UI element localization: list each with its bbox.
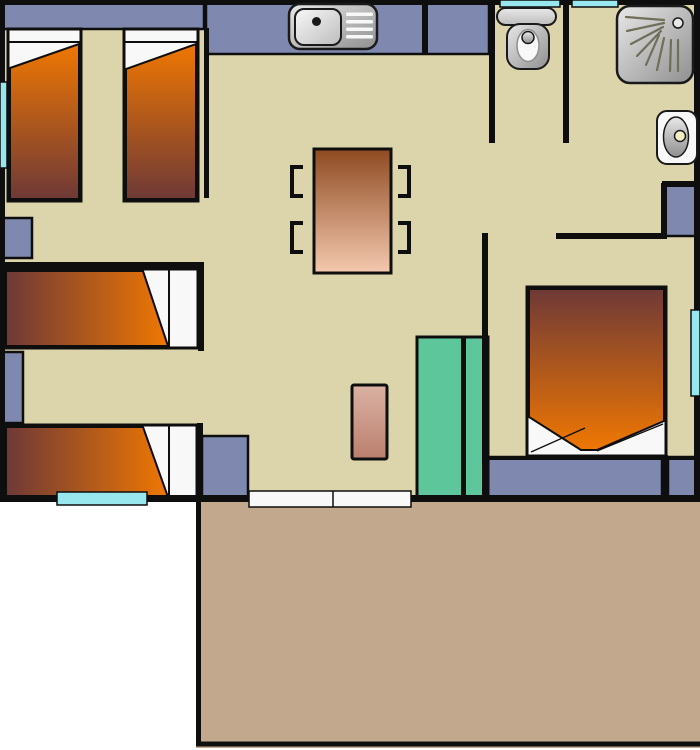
- blanket: [529, 289, 664, 450]
- wall: [563, 0, 569, 143]
- exterior-wall: [0, 0, 5, 502]
- wall: [198, 262, 204, 351]
- wall: [487, 456, 700, 460]
- storage-closet: [664, 184, 697, 236]
- bed-single-1: [8, 29, 81, 201]
- sink-drain-icon: [312, 17, 321, 26]
- toilet-cistern: [497, 8, 556, 25]
- sliding-door: [249, 491, 411, 507]
- sink-bowl: [295, 9, 341, 45]
- terrace-deck: [196, 497, 700, 748]
- wardrobe-blue: [202, 436, 248, 498]
- wardrobe-green-divider: [461, 337, 466, 500]
- wall: [661, 183, 667, 239]
- bed-double: [527, 287, 666, 456]
- wall-shelf: [2, 218, 32, 258]
- rug: [352, 385, 387, 459]
- blanket: [10, 44, 79, 199]
- wall: [662, 455, 668, 498]
- bed-bench: [485, 457, 662, 498]
- sliding-door-panel: [249, 491, 411, 507]
- bed-single-3: [4, 269, 198, 348]
- bed-single-2: [124, 29, 198, 201]
- window-icon: [500, 0, 560, 7]
- wall: [204, 28, 209, 198]
- wall: [0, 262, 204, 268]
- window-icon: [57, 492, 147, 505]
- shower: [617, 6, 693, 83]
- counter-divider: [422, 2, 428, 54]
- blanket: [126, 44, 196, 199]
- drainer-bar: [346, 20, 373, 24]
- nightstand: [2, 352, 23, 423]
- kitchen-sink: [289, 4, 377, 49]
- dining-table: [314, 149, 391, 273]
- washbasin: [657, 111, 697, 164]
- shower-head-icon: [673, 18, 683, 28]
- drainer-bar: [346, 28, 373, 32]
- drainer-bar: [346, 13, 373, 17]
- headboard-shelf: [3, 3, 204, 29]
- floor-plan-svg: [0, 0, 700, 750]
- window-icon: [691, 310, 700, 396]
- washbasin-drain-icon: [675, 131, 686, 142]
- window-icon: [572, 0, 618, 7]
- blanket: [6, 427, 168, 497]
- bed-single-4: [4, 425, 197, 499]
- exterior-wall: [694, 0, 700, 497]
- wall: [489, 0, 495, 143]
- wall: [556, 233, 667, 239]
- shower-spray-line: [670, 40, 671, 71]
- blanket: [6, 271, 168, 346]
- window-icon: [0, 82, 7, 168]
- wall: [197, 423, 203, 502]
- wall: [482, 233, 488, 502]
- wardrobe-green: [417, 337, 488, 500]
- toilet-flush-icon: [522, 32, 534, 44]
- drainer-bar: [346, 35, 373, 39]
- bed-bench-side: [668, 457, 697, 498]
- floor-plan: [0, 0, 700, 750]
